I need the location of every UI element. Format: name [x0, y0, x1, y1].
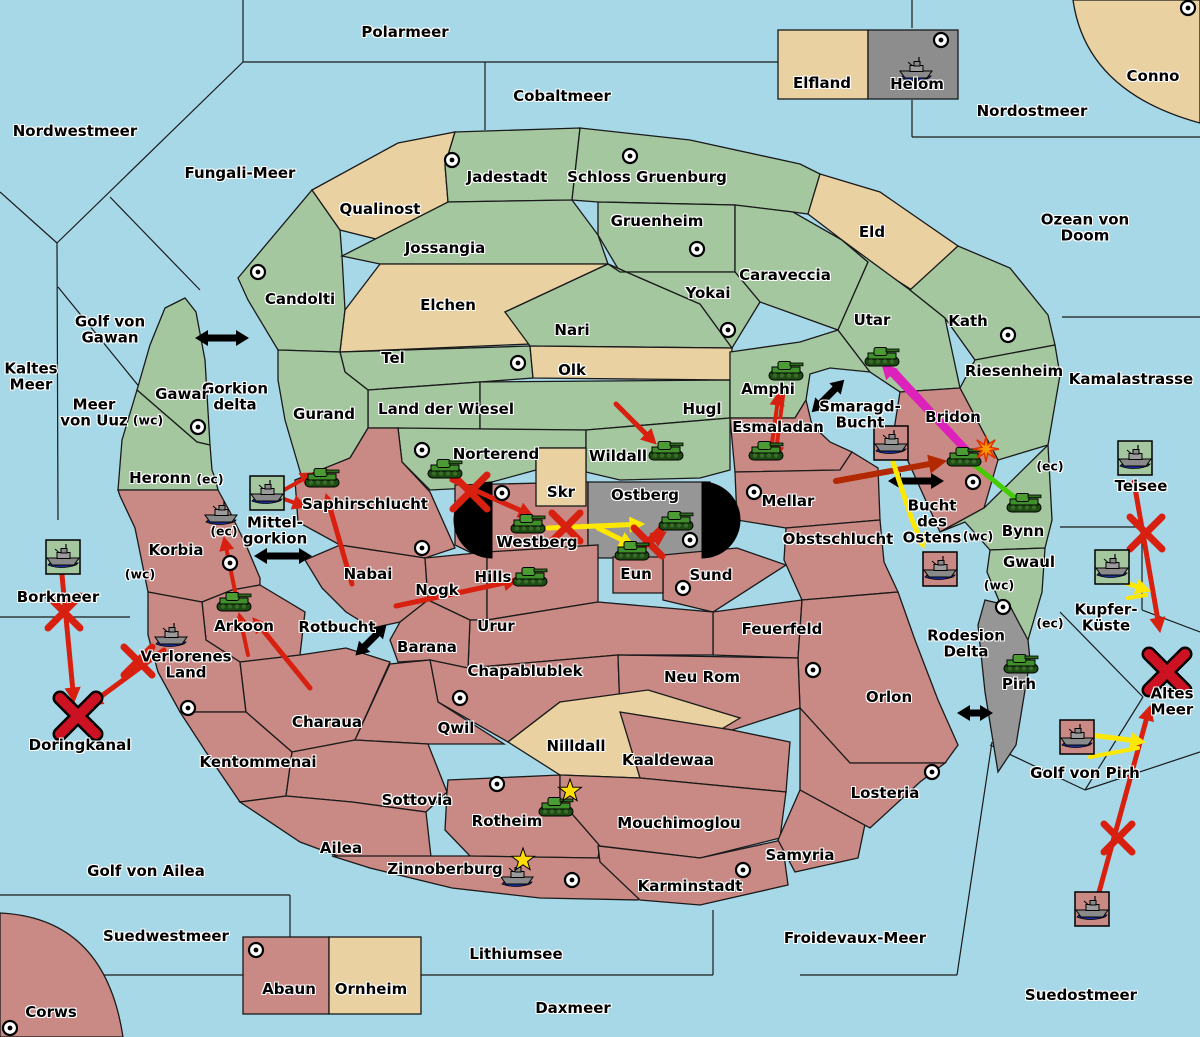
army-unit-saphirschlucht[interactable]: [305, 469, 339, 488]
adjacency-arrow: [195, 330, 249, 346]
supply-center-dot: [1181, 1, 1195, 15]
supply-center-dot: [565, 873, 579, 887]
fleet-unit-mittel-gorkion[interactable]: [250, 476, 284, 510]
victory-star: [512, 848, 535, 870]
fleet-unit-verlorenes-land[interactable]: [155, 623, 187, 647]
army-unit-ostberg[interactable]: [659, 512, 693, 531]
supply-center-dot: [721, 323, 735, 337]
army-unit-westberg[interactable]: [511, 515, 545, 534]
supply-center-dot: [453, 691, 467, 705]
army-unit-wildall[interactable]: [649, 442, 683, 461]
supply-center-dot: [415, 443, 429, 457]
fleet-unit-helom[interactable]: [900, 57, 932, 81]
order-arrow-yellow: [1090, 733, 1145, 747]
fleet-unit-golf-von-pirh[interactable]: [1060, 720, 1094, 754]
order-arrow-yellow: [1128, 595, 1146, 598]
supply-center-dot: [181, 701, 195, 715]
supply-center-dot: [623, 149, 637, 163]
order-arrow-red: [253, 618, 310, 688]
order-arrow-red: [323, 494, 352, 584]
adjacency-arrow: [254, 548, 312, 564]
supply-center-dot: [683, 533, 697, 547]
order-arrow-red: [235, 613, 248, 655]
supply-center-dot: [966, 475, 980, 489]
supply-center-dot: [445, 153, 459, 167]
army-unit-pirh[interactable]: [1004, 655, 1038, 674]
supply-center-dot: [996, 600, 1010, 614]
supply-center-dot: [495, 486, 509, 500]
fleet-unit-bucht-des-ostens[interactable]: [923, 552, 957, 586]
army-unit-hills[interactable]: [513, 568, 547, 587]
supply-center-dot: [925, 765, 939, 779]
supply-center-dot: [490, 777, 504, 791]
order-arrow-red: [1134, 482, 1165, 632]
supply-center-dot: [736, 863, 750, 877]
fleet-unit-teisee[interactable]: [1118, 441, 1152, 475]
army-unit-utar[interactable]: [865, 348, 899, 367]
order-arrow-red: [616, 404, 656, 444]
army-unit-arkoon[interactable]: [217, 593, 251, 612]
supply-center-dot: [676, 581, 690, 595]
supply-center-dot: [251, 265, 265, 279]
adjacency-arrow: [806, 374, 850, 418]
supply-center-dot: [3, 1021, 17, 1035]
supply-center-dot: [806, 663, 820, 677]
fleet-unit-borkmeer[interactable]: [46, 540, 80, 574]
order-arrow-red: [1098, 706, 1153, 896]
supply-center-dot: [747, 485, 761, 499]
supply-center-dot: [191, 420, 205, 434]
battle-failed-x-large: [60, 698, 96, 734]
fleet-unit-suedostmeer[interactable]: [1075, 892, 1109, 926]
game-map: PolarmeerCobaltmeerNordostmeerNordwestme…: [0, 0, 1200, 1037]
fleet-unit-korbia-ec-[interactable]: [205, 501, 237, 525]
battle-explosion: [973, 436, 999, 462]
supply-center-dot: [934, 33, 948, 47]
order-arrow-yellow: [1090, 748, 1138, 757]
fleet-unit-smaragd-bucht[interactable]: [874, 426, 908, 460]
supply-center-dot: [690, 242, 704, 256]
adjacency-arrow: [957, 705, 993, 721]
supply-center-dot: [415, 541, 429, 555]
army-unit-norterend[interactable]: [428, 460, 462, 479]
order-arrow-red: [396, 576, 518, 606]
supply-center-dot: [223, 556, 237, 570]
orders-and-units-overlay: [0, 0, 1200, 1037]
army-unit-amphi[interactable]: [769, 362, 803, 381]
fleet-unit-kupfer-k-ste[interactable]: [1095, 550, 1129, 584]
supply-center-dot: [1001, 328, 1015, 342]
adjacency-arrow: [350, 619, 392, 661]
supply-center-dot: [249, 943, 263, 957]
order-arrow-red: [284, 496, 306, 509]
victory-star: [559, 779, 582, 801]
battle-failed-x-large: [1149, 654, 1185, 690]
order-arrow-yellow: [893, 462, 925, 548]
supply-center-dot: [511, 356, 525, 370]
army-unit-rotheim[interactable]: [539, 798, 573, 817]
army-unit-esmaladan[interactable]: [749, 442, 783, 461]
